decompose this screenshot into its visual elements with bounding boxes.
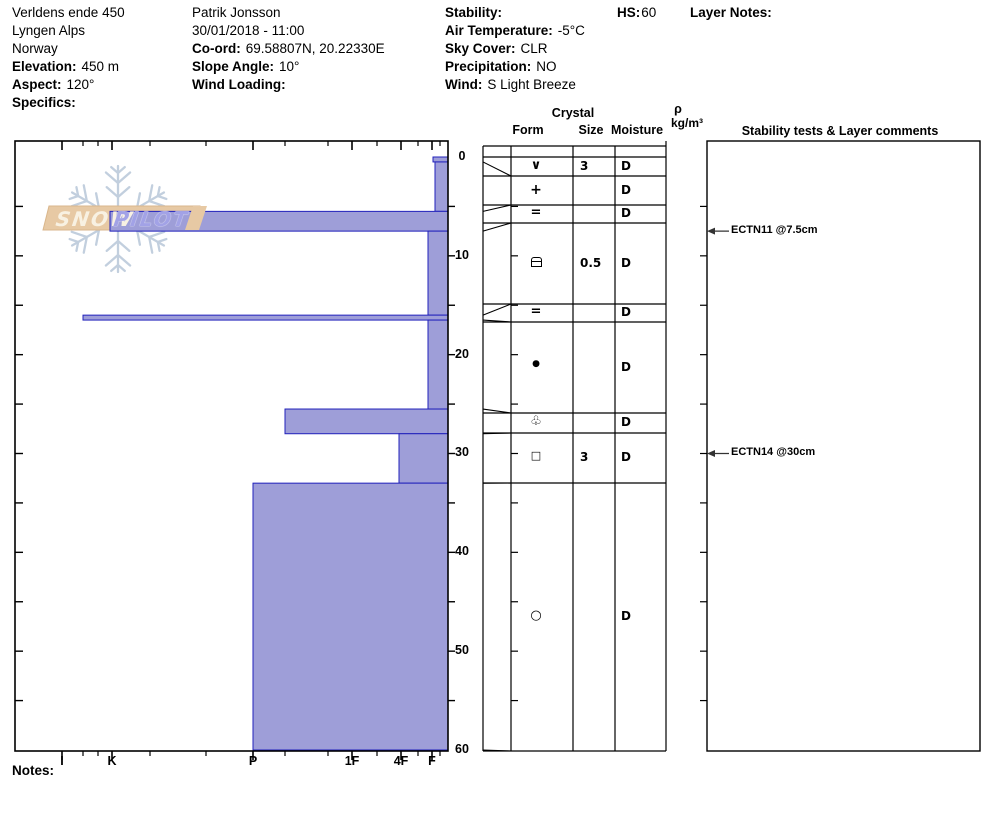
air-temperature-field: Air Temperature:-5°C: [445, 22, 585, 40]
comments-column-header: Stability tests & Layer comments: [714, 124, 966, 138]
grain-form-symbol: =: [511, 205, 561, 220]
sky-cover-field: Sky Cover:CLR: [445, 40, 585, 58]
specifics-field: Specifics:: [12, 94, 125, 112]
moisture-code: D: [621, 256, 631, 270]
wind-loading-field: Wind Loading:: [192, 76, 385, 94]
hardness-bar: [428, 231, 448, 315]
range-name: Lyngen Alps: [12, 22, 125, 40]
grain-size-value: 3: [580, 450, 588, 464]
hardness-bar: [253, 483, 448, 750]
grain-form-symbol: =: [511, 304, 561, 319]
grain-form-symbol: ∨: [511, 158, 561, 173]
annotation-arrow-icon: [707, 228, 715, 235]
hardness-bar: [435, 162, 448, 211]
wind-field: Wind:S Light Breeze: [445, 76, 585, 94]
depth-tick-label: 0: [448, 149, 476, 163]
stability-test-annotation: ECTN11 @7.5cm: [731, 224, 818, 236]
moisture-code: D: [621, 450, 631, 464]
hardness-bar: [285, 409, 448, 434]
header-conditions-block: Stability: Air Temperature:-5°C Sky Cove…: [445, 4, 585, 94]
aspect-field: Aspect:120°: [12, 76, 125, 94]
hardness-tick-label: 1F: [339, 754, 365, 768]
annotation-arrow-icon: [707, 450, 715, 457]
crystal-header: Crystal: [549, 106, 597, 120]
depth-tick-label: 40: [448, 544, 476, 558]
depth-tick-label: 10: [448, 248, 476, 262]
country-name: Norway: [12, 40, 125, 58]
grain-form-symbol: □: [511, 449, 561, 462]
depth-tick-label: 20: [448, 347, 476, 361]
header-location-block: Verldens ende 450 Lyngen Alps Norway Ele…: [12, 4, 125, 112]
hardness-tick-label: P: [240, 754, 266, 768]
moisture-code: D: [621, 159, 631, 173]
slope-angle-field: Slope Angle:10°: [192, 58, 385, 76]
header-observer-block: Patrik Jonsson 30/01/2018 - 11:00 Co-ord…: [192, 4, 385, 94]
hardness-bar: [83, 315, 448, 320]
layer-notes-label: Layer Notes:: [690, 4, 777, 22]
moisture-column-header: Moisture: [609, 123, 665, 137]
size-column-header: Size: [576, 123, 606, 137]
grain-form-symbol: ●: [511, 359, 561, 369]
hardness-bar: [433, 157, 448, 162]
hardness-bar: [428, 320, 448, 409]
grain-form-symbol: [511, 255, 561, 269]
grain-form-symbol: ♧: [511, 414, 561, 429]
density-header: ρ: [671, 102, 685, 116]
precipitation-field: Precipitation:NO: [445, 58, 585, 76]
notes-label: Notes:: [12, 763, 54, 778]
depth-tick-label: 50: [448, 643, 476, 657]
pit-name: Verldens ende 450: [12, 4, 125, 22]
snowpilot-profile-page: Verldens ende 450 Lyngen Alps Norway Ele…: [0, 0, 994, 840]
hardness-tick-label: 4F: [388, 754, 414, 768]
observer-name: Patrik Jonsson: [192, 4, 385, 22]
form-column-header: Form: [506, 123, 550, 137]
coordinates-field: Co-ord:69.58807N, 20.22330E: [192, 40, 385, 58]
depth-tick-label: 60: [448, 742, 476, 756]
stability-field: Stability:: [445, 4, 585, 22]
grain-form-symbol: +: [511, 182, 561, 198]
stability-test-annotation: ECTN14 @30cm: [731, 446, 815, 458]
moisture-code: D: [621, 415, 631, 429]
depth-tick-label: 30: [448, 445, 476, 459]
hardness-bar: [399, 434, 448, 483]
moisture-code: D: [621, 305, 631, 319]
hardness-tick-label: K: [99, 754, 125, 768]
elevation-field: Elevation:450 m: [12, 58, 125, 76]
grain-form-symbol: ○: [511, 608, 561, 623]
moisture-code: D: [621, 206, 631, 220]
moisture-code: D: [621, 360, 631, 374]
moisture-code: D: [621, 609, 631, 623]
grain-size-value: 0.5: [580, 256, 601, 270]
logo-pilot-word: PILOT: [112, 207, 190, 231]
hardness-tick-label: F: [419, 754, 445, 768]
moisture-code: D: [621, 183, 631, 197]
density-unit-header: kg/m³: [666, 116, 708, 130]
grain-size-value: 3: [580, 159, 588, 173]
date-time: 30/01/2018 - 11:00: [192, 22, 385, 40]
hs-field: HS:60: [617, 4, 656, 22]
